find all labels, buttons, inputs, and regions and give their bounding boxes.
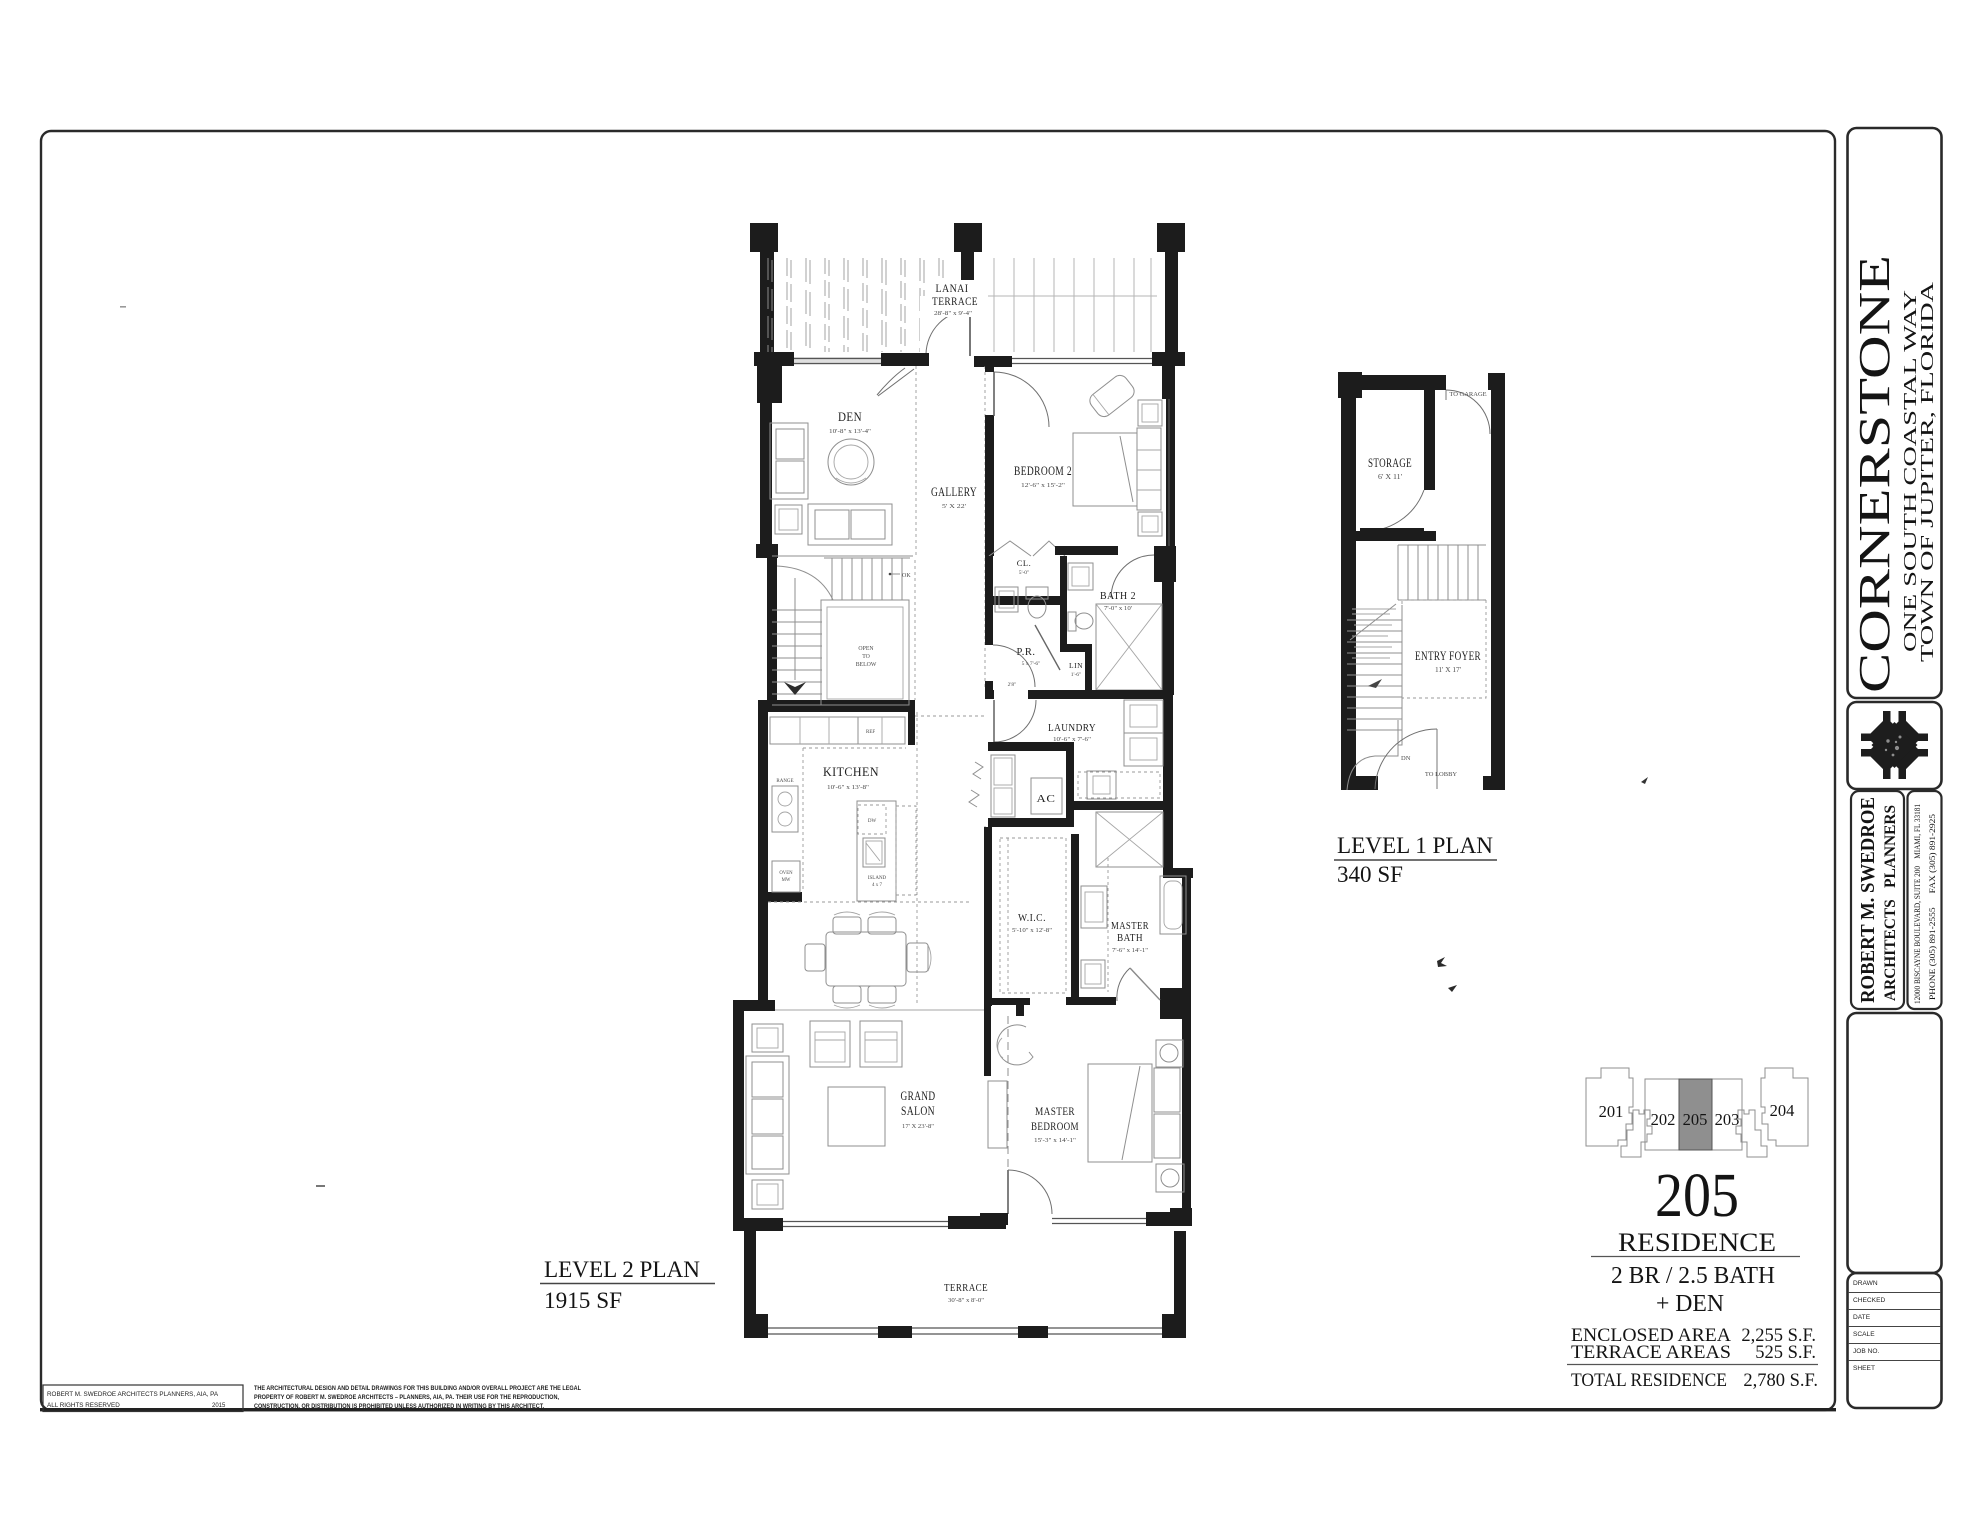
svg-text:5' X 22': 5' X 22' bbox=[942, 503, 966, 510]
svg-text:PROPERTY OF ROBERT M. SWEDROE: PROPERTY OF ROBERT M. SWEDROE ARCHITECTS… bbox=[254, 1394, 559, 1401]
svg-text:RESIDENCE: RESIDENCE bbox=[1618, 1228, 1776, 1257]
svg-text:TOTAL RESIDENCE: TOTAL RESIDENCE bbox=[1571, 1371, 1727, 1391]
svg-text:+ DEN: + DEN bbox=[1656, 1291, 1724, 1317]
svg-text:W.I.C.: W.I.C. bbox=[1018, 913, 1046, 924]
svg-text:CORNERSTONE: CORNERSTONE bbox=[1850, 255, 1899, 693]
svg-text:ISLAND: ISLAND bbox=[868, 876, 887, 881]
svg-text:GALLERY: GALLERY bbox=[931, 484, 977, 499]
svg-text:LEVEL 1 PLAN: LEVEL 1 PLAN bbox=[1337, 833, 1493, 858]
svg-text:2'8": 2'8" bbox=[1008, 682, 1017, 688]
svg-text:202: 202 bbox=[1651, 1110, 1676, 1129]
svg-text:4 x 7: 4 x 7 bbox=[872, 883, 883, 888]
svg-text:2015: 2015 bbox=[212, 1403, 226, 1409]
svg-text:TERRACE: TERRACE bbox=[932, 294, 978, 308]
svg-text:28'-8" x 9'-4": 28'-8" x 9'-4" bbox=[934, 310, 972, 317]
svg-text:205: 205 bbox=[1655, 1162, 1739, 1230]
svg-text:11' X 17': 11' X 17' bbox=[1435, 666, 1461, 674]
svg-text:RANGE: RANGE bbox=[776, 779, 793, 784]
svg-text:GRAND: GRAND bbox=[901, 1089, 936, 1103]
svg-text:204: 204 bbox=[1770, 1101, 1795, 1120]
svg-text:SHEET: SHEET bbox=[1853, 1365, 1875, 1372]
svg-text:LANAI: LANAI bbox=[936, 281, 969, 295]
svg-text:MW: MW bbox=[782, 878, 791, 883]
svg-text:ARCHITECTS PLANNERS: ARCHITECTS PLANNERS bbox=[1882, 805, 1899, 1001]
svg-text:P.R.: P.R. bbox=[1017, 647, 1036, 658]
svg-text:525 S.F.: 525 S.F. bbox=[1755, 1343, 1816, 1363]
svg-text:SALON: SALON bbox=[901, 1104, 935, 1118]
svg-text:TOWN OF JUPITER, FLORIDA: TOWN OF JUPITER, FLORIDA bbox=[1917, 281, 1937, 662]
svg-text:PHONE (305) 891-2555 FAX: PHONE (305) 891-2555 FAX (305) 891-2925 bbox=[1928, 814, 1937, 1000]
svg-text:10'-8" x 13'-4": 10'-8" x 13'-4" bbox=[829, 428, 871, 435]
svg-text:10'-6" x 13'-8": 10'-6" x 13'-8" bbox=[827, 784, 869, 791]
svg-text:205: 205 bbox=[1683, 1110, 1708, 1129]
svg-text:BEDROOM: BEDROOM bbox=[1031, 1119, 1079, 1133]
svg-text:7'-6" x 14'-1": 7'-6" x 14'-1" bbox=[1112, 948, 1149, 954]
svg-text:DW: DW bbox=[868, 819, 877, 824]
svg-text:ENTRY FOYER: ENTRY FOYER bbox=[1415, 648, 1481, 663]
svg-text:DEN: DEN bbox=[838, 409, 862, 424]
svg-text:BEDROOM 2: BEDROOM 2 bbox=[1014, 464, 1072, 478]
svg-text:BATH: BATH bbox=[1117, 933, 1143, 944]
svg-text:AC: AC bbox=[1037, 793, 1056, 805]
svg-text:CONSTRUCTION, OR DISTRIBUTION: CONSTRUCTION, OR DISTRIBUTION IS PROHIBI… bbox=[254, 1403, 544, 1410]
svg-text:5'-10" x 12'-8": 5'-10" x 12'-8" bbox=[1012, 928, 1053, 934]
svg-text:MASTER: MASTER bbox=[1111, 921, 1149, 932]
svg-text:JOB NO.: JOB NO. bbox=[1853, 1348, 1880, 1355]
svg-text:30'-8" x 8'-0": 30'-8" x 8'-0" bbox=[948, 1297, 984, 1304]
svg-text:CHECKED: CHECKED bbox=[1853, 1297, 1885, 1304]
svg-text:1915 SF: 1915 SF bbox=[544, 1288, 622, 1313]
svg-text:MASTER: MASTER bbox=[1035, 1104, 1075, 1118]
svg-text:OPEN: OPEN bbox=[858, 646, 874, 652]
svg-text:BATH 2: BATH 2 bbox=[1100, 590, 1136, 602]
svg-text:2 BR / 2.5 BATH: 2 BR / 2.5 BATH bbox=[1611, 1263, 1775, 1289]
svg-text:TO: TO bbox=[862, 654, 870, 660]
svg-text:LAUNDRY: LAUNDRY bbox=[1048, 722, 1096, 734]
svg-text:15'-3" x 14'-1": 15'-3" x 14'-1" bbox=[1034, 1137, 1076, 1144]
svg-text:5 x 7'-6": 5 x 7'-6" bbox=[1022, 661, 1041, 667]
svg-text:ROBERT M. SWEDROE ARCHITECTS: ROBERT M. SWEDROE ARCHITECTS PLANNERS, A… bbox=[47, 1391, 219, 1398]
svg-text:12000 BISCAYNE BOULEVARD, SUIT: 12000 BISCAYNE BOULEVARD, SUITE 200 MIAM… bbox=[1913, 804, 1922, 1004]
svg-text:CL.: CL. bbox=[1017, 558, 1032, 568]
svg-text:TO GARAGE: TO GARAGE bbox=[1449, 391, 1486, 398]
svg-text:LIN: LIN bbox=[1069, 661, 1083, 670]
svg-text:203: 203 bbox=[1715, 1110, 1740, 1129]
svg-text:DATE: DATE bbox=[1853, 1314, 1871, 1321]
svg-text:LEVEL 2 PLAN: LEVEL 2 PLAN bbox=[544, 1257, 700, 1282]
svg-text:THE ARCHITECTURAL DESIGN AND D: THE ARCHITECTURAL DESIGN AND DETAIL DRAW… bbox=[254, 1385, 581, 1392]
svg-text:ROBERT M. SWEDROE: ROBERT M. SWEDROE bbox=[1857, 797, 1879, 1003]
svg-text:340 SF: 340 SF bbox=[1337, 862, 1403, 887]
svg-text:7'-0" x 10': 7'-0" x 10' bbox=[1104, 605, 1132, 612]
svg-text:REF: REF bbox=[866, 730, 875, 735]
svg-text:12'-6" x 15'-2": 12'-6" x 15'-2" bbox=[1021, 482, 1065, 489]
svg-text:OVEN: OVEN bbox=[779, 871, 793, 876]
svg-text:TO LOBBY: TO LOBBY bbox=[1425, 771, 1458, 778]
svg-text:1'-6": 1'-6" bbox=[1071, 672, 1082, 678]
svg-text:5'-0": 5'-0" bbox=[1019, 570, 1030, 576]
svg-text:BELOW: BELOW bbox=[856, 662, 877, 668]
svg-text:TERRACE: TERRACE bbox=[944, 1282, 988, 1294]
svg-text:DRAWN: DRAWN bbox=[1853, 1280, 1878, 1287]
svg-text:ALL RIGHTS RESERVED: ALL RIGHTS RESERVED bbox=[47, 1402, 120, 1409]
svg-text:TERRACE AREAS: TERRACE AREAS bbox=[1571, 1343, 1731, 1363]
svg-text:OK: OK bbox=[902, 573, 911, 579]
svg-text:KITCHEN: KITCHEN bbox=[823, 764, 879, 779]
svg-text:201: 201 bbox=[1599, 1102, 1624, 1121]
svg-text:STORAGE: STORAGE bbox=[1368, 456, 1412, 470]
svg-text:DN: DN bbox=[1401, 755, 1411, 762]
svg-text:6' X 11': 6' X 11' bbox=[1378, 473, 1402, 481]
svg-text:17' X 23'-8": 17' X 23'-8" bbox=[902, 1123, 934, 1130]
svg-text:2,780 S.F.: 2,780 S.F. bbox=[1743, 1371, 1818, 1391]
svg-text:SCALE: SCALE bbox=[1853, 1331, 1875, 1338]
